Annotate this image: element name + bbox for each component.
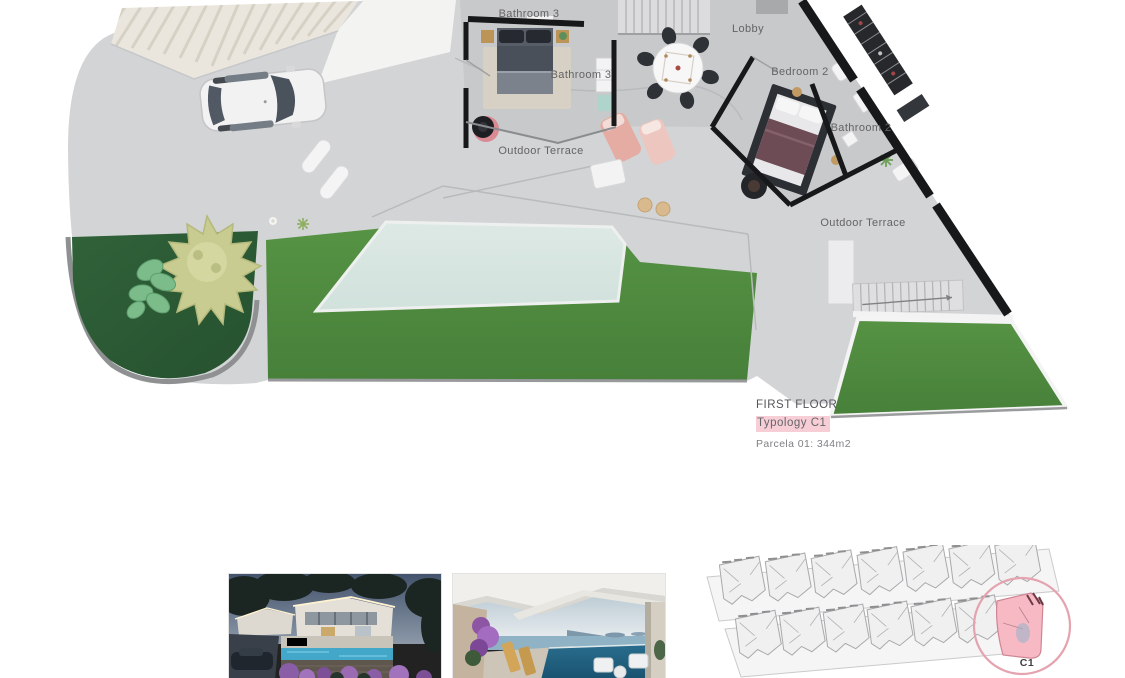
label-bathroom3-lower: Bathroom 3 (551, 69, 612, 81)
lawn-east (831, 319, 1066, 416)
label-bathroom2: Bathroom 2 (831, 122, 892, 134)
photo-exterior-night (228, 573, 442, 678)
unit-c1-label: C1 (1020, 657, 1034, 669)
label-outdoor-terrace-east: Outdoor Terrace (820, 217, 905, 229)
plan-caption: FIRST FLOOR Typology C1 Parcela 01: 344m… (756, 398, 851, 452)
label-bedroom2: Bedroom 2 (771, 66, 828, 78)
lawn-curb (268, 380, 747, 381)
floor-title: FIRST FLOOR (756, 398, 851, 412)
label-bathroom3-upper: Bathroom 3 (499, 8, 560, 20)
bathroom3-fixtures (596, 58, 613, 111)
label-outdoor-terrace-west: Outdoor Terrace (498, 145, 583, 157)
label-lobby: Lobby (732, 23, 764, 35)
typology-badge: Typology C1 (756, 416, 830, 431)
site-plan: C1 (697, 545, 1125, 678)
floor-plan-image: Bathroom 3 Bathroom 3 Lobby Bedroom 2 Ba… (0, 0, 1125, 560)
brochure-page: Bathroom 3 Bathroom 3 Lobby Bedroom 2 Ba… (0, 0, 1125, 678)
photo-terrace-view (452, 573, 666, 678)
parcel-size: Parcela 01: 344m2 (756, 438, 851, 451)
exterior-night-render (229, 574, 441, 678)
highlighted-unit (997, 593, 1043, 658)
terrace-sea-view-render (453, 574, 665, 678)
